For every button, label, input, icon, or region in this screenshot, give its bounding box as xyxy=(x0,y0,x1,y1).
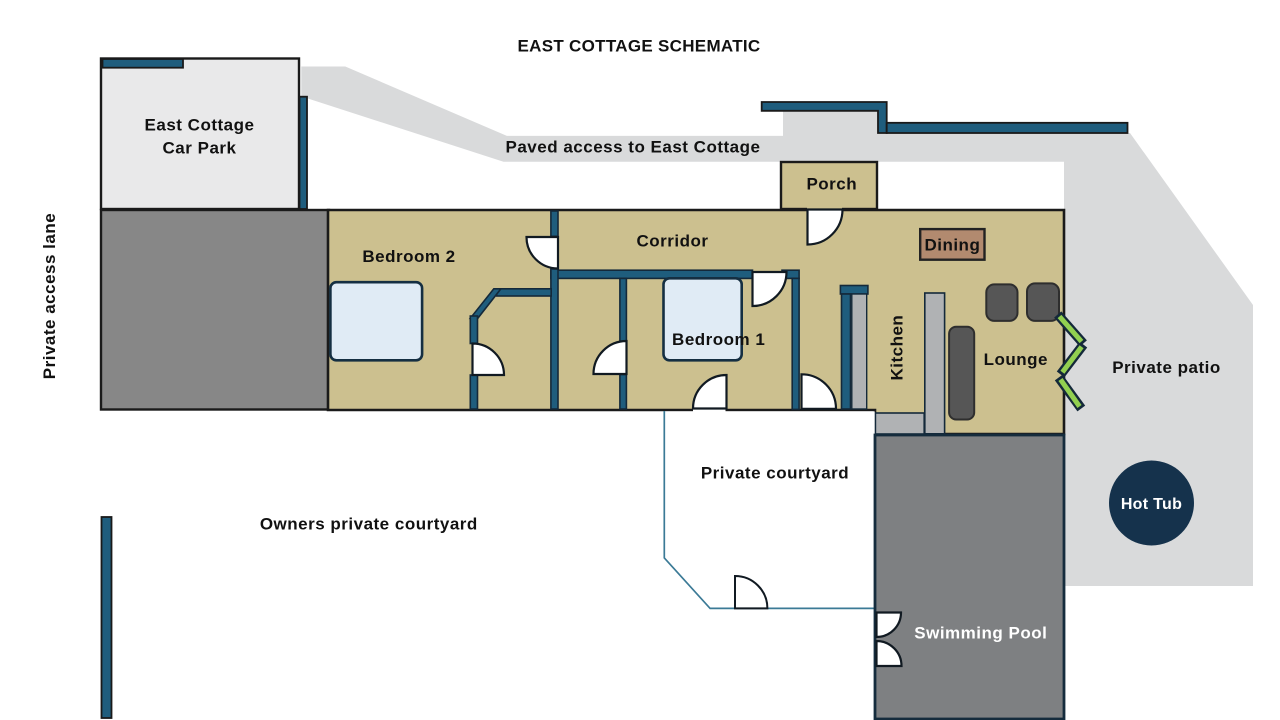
svg-text:Hot Tub: Hot Tub xyxy=(1121,496,1182,513)
svg-text:Owners private courtyard: Owners private courtyard xyxy=(260,515,478,534)
svg-text:Private courtyard: Private courtyard xyxy=(701,464,849,483)
svg-text:EAST COTTAGE SCHEMATIC: EAST COTTAGE SCHEMATIC xyxy=(517,37,760,56)
svg-text:Dining: Dining xyxy=(924,236,980,255)
svg-text:Lounge: Lounge xyxy=(984,350,1048,369)
svg-text:Kitchen: Kitchen xyxy=(888,315,907,381)
svg-text:Swimming Pool: Swimming Pool xyxy=(914,624,1047,643)
svg-text:Paved access to East Cottage: Paved access to East Cottage xyxy=(506,138,761,157)
svg-text:Private access lane: Private access lane xyxy=(40,213,59,379)
svg-text:Bedroom 2: Bedroom 2 xyxy=(362,247,455,266)
svg-text:Private patio: Private patio xyxy=(1112,358,1221,377)
svg-text:Porch: Porch xyxy=(806,175,857,194)
svg-text:Car Park: Car Park xyxy=(163,139,237,158)
svg-text:Bedroom 1: Bedroom 1 xyxy=(672,330,765,349)
svg-text:East Cottage: East Cottage xyxy=(145,116,255,135)
svg-text:Corridor: Corridor xyxy=(637,232,709,251)
